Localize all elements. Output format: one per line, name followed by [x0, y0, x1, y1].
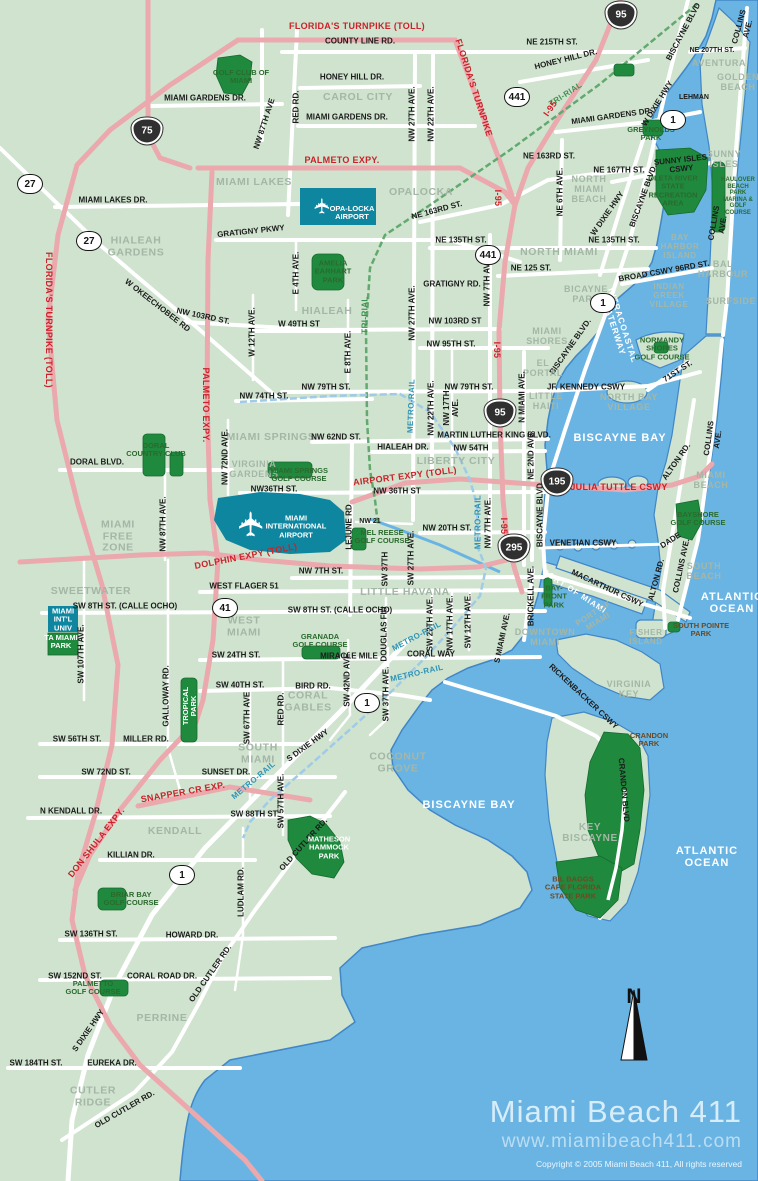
airplane-icon: ✈	[311, 197, 336, 215]
airplane-icon: ✈	[232, 510, 272, 539]
compass-north-icon	[612, 986, 656, 1066]
site-title: Miami Beach 411	[490, 1094, 742, 1130]
miami-road-map: FLORIDA'S TURNPIKE (TOLL)COUNTY LINE RD.…	[0, 0, 758, 1181]
site-branding: Miami Beach 411 www.miamibeach411.com Co…	[490, 1094, 742, 1169]
compass-rose: N	[612, 986, 656, 1092]
site-url: www.miamibeach411.com	[490, 1131, 742, 1153]
copyright-notice: Copyright © 2005 Miami Beach 411, All ri…	[490, 1159, 742, 1169]
